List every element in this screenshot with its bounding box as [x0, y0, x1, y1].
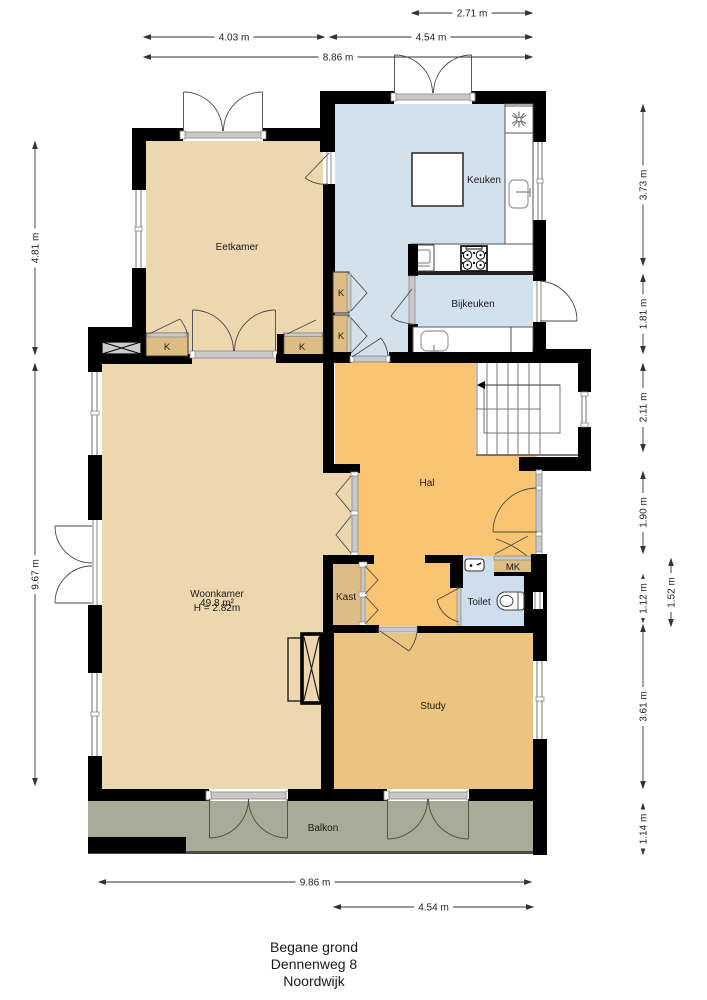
svg-text:3.61 m: 3.61 m — [639, 691, 650, 722]
svg-text:Hal: Hal — [419, 478, 434, 489]
svg-text:Begane grond: Begane grond — [270, 939, 358, 955]
svg-text:K: K — [338, 288, 345, 299]
svg-text:Toilet: Toilet — [467, 597, 491, 608]
svg-text:Bijkeuken: Bijkeuken — [451, 299, 494, 310]
svg-text:Keuken: Keuken — [467, 175, 501, 186]
svg-text:4.03 m: 4.03 m — [219, 33, 250, 44]
svg-text:4.54 m: 4.54 m — [418, 903, 449, 914]
svg-text:1.12 m: 1.12 m — [639, 583, 650, 614]
svg-text:Study: Study — [420, 701, 446, 712]
svg-text:2.71 m: 2.71 m — [457, 9, 488, 20]
svg-text:Noordwijk: Noordwijk — [283, 973, 345, 989]
svg-text:Balkon: Balkon — [308, 823, 339, 834]
svg-text:9.67 m: 9.67 m — [31, 559, 42, 590]
svg-text:K: K — [299, 342, 306, 353]
svg-text:1.52 m: 1.52 m — [667, 577, 678, 608]
svg-text:4.81 m: 4.81 m — [31, 233, 42, 264]
svg-text:K: K — [164, 342, 171, 353]
svg-text:2.11 m: 2.11 m — [639, 393, 650, 423]
svg-text:1.90 m: 1.90 m — [639, 497, 650, 528]
svg-text:H = 2.82m: H = 2.82m — [194, 603, 240, 614]
svg-text:9.86 m: 9.86 m — [300, 878, 331, 889]
svg-text:Dennenweg 8: Dennenweg 8 — [271, 956, 358, 972]
svg-text:MK: MK — [506, 562, 521, 573]
svg-text:8.86 m: 8.86 m — [323, 53, 354, 64]
svg-text:1.14 m: 1.14 m — [639, 814, 650, 845]
svg-text:Eetkamer: Eetkamer — [216, 242, 259, 253]
svg-text:4.54 m: 4.54 m — [416, 33, 447, 44]
svg-text:Kast: Kast — [336, 592, 356, 603]
svg-text:3.73 m: 3.73 m — [639, 170, 650, 201]
svg-text:K: K — [338, 331, 345, 342]
svg-text:1.81 m: 1.81 m — [639, 299, 650, 330]
